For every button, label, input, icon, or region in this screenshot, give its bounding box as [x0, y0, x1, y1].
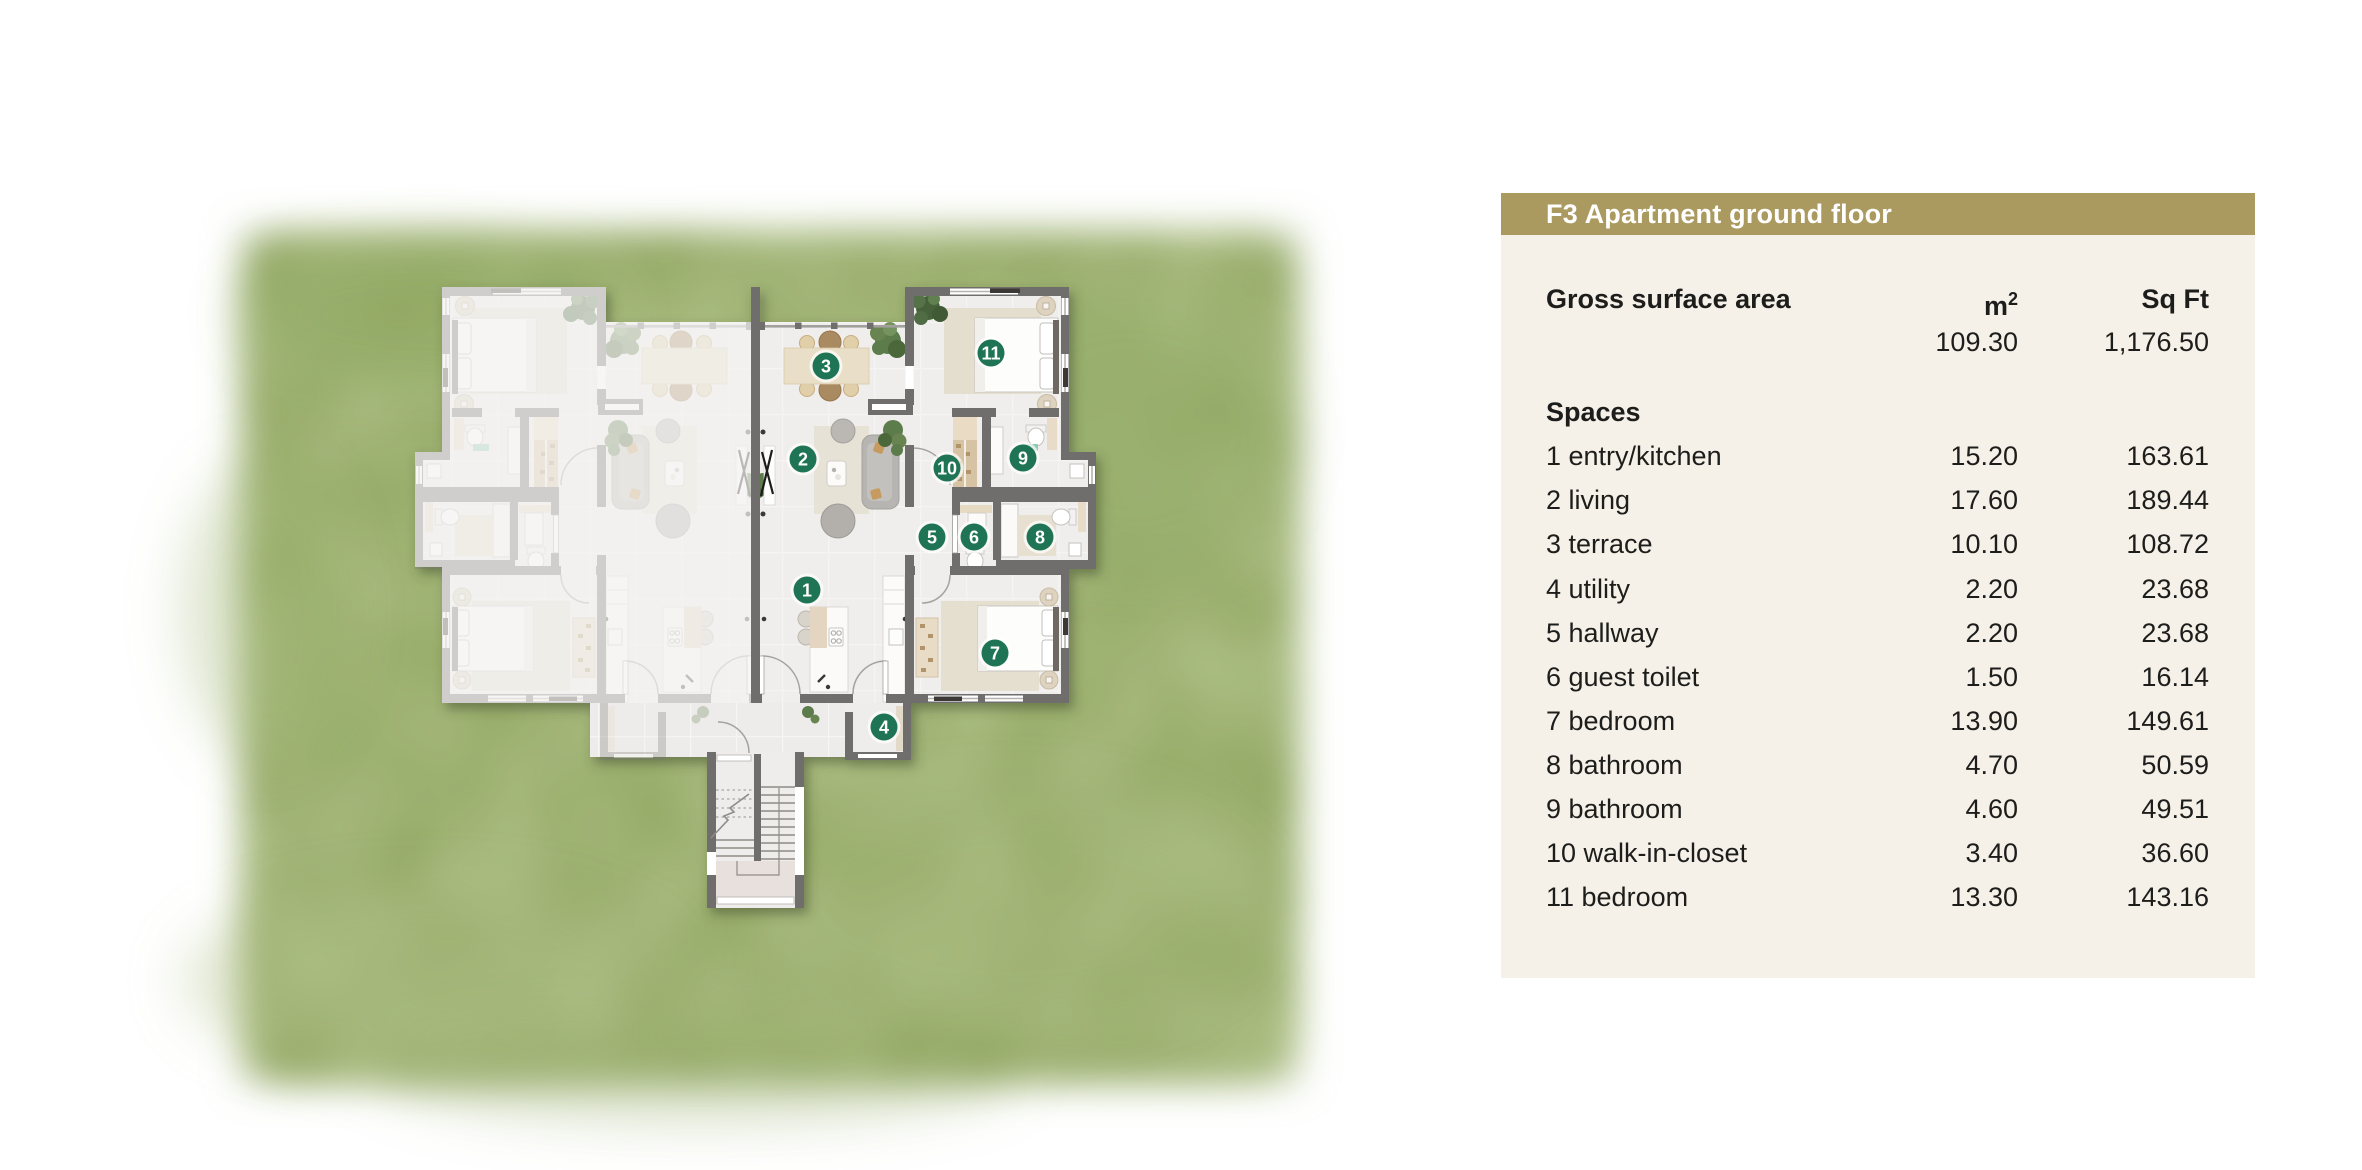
svg-text:3: 3: [821, 357, 831, 377]
